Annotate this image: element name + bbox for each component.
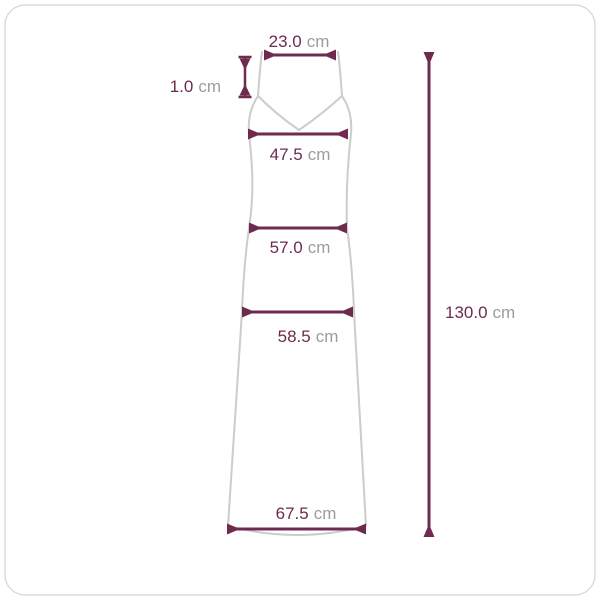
dress-right-strap [338, 52, 342, 96]
arrow-right-icon [340, 307, 353, 318]
arrow-down-icon [424, 524, 435, 537]
dress-outline [228, 52, 366, 535]
dress-left-strap [258, 52, 262, 96]
size-chart-canvas: 23.0cm 1.0cm 47.5cm 57.0cm [0, 0, 600, 600]
arrow-right-icon [335, 129, 348, 140]
dress-v-neckline [258, 96, 342, 130]
arrow-left-icon [227, 524, 240, 535]
label-bust-width: 47.5cm [270, 145, 331, 164]
label-waist-width: 57.0cm [270, 238, 331, 257]
arrow-right-icon [353, 524, 366, 535]
label-hip-width: 58.5cm [278, 327, 339, 346]
arrow-down-icon [240, 84, 251, 96]
label-strap-length: 1.0cm [170, 77, 221, 96]
label-shoulder-width: 23.0cm [269, 32, 330, 51]
dimension-hem-width: 67.5cm [227, 504, 366, 535]
dimension-total-length: 130.0cm [424, 52, 516, 537]
arrow-left-icon [249, 223, 262, 234]
arrow-up-icon [424, 52, 435, 65]
arrow-left-icon [264, 50, 277, 61]
dimension-hip-width: 58.5cm [242, 307, 353, 347]
arrow-up-icon [240, 59, 251, 71]
arrow-left-icon [242, 307, 255, 318]
arrow-right-icon [323, 50, 336, 61]
dress-measurement-diagram: 23.0cm 1.0cm 47.5cm 57.0cm [0, 0, 600, 600]
dimension-bust-width: 47.5cm [248, 129, 348, 165]
label-hem-width: 67.5cm [276, 504, 337, 523]
dimension-waist-width: 57.0cm [249, 223, 347, 258]
arrow-right-icon [334, 223, 347, 234]
label-total-length: 130.0cm [445, 303, 515, 322]
dimension-shoulder-width: 23.0cm [264, 32, 336, 61]
arrow-left-icon [248, 129, 261, 140]
dimension-strap-length: 1.0cm [170, 57, 252, 97]
